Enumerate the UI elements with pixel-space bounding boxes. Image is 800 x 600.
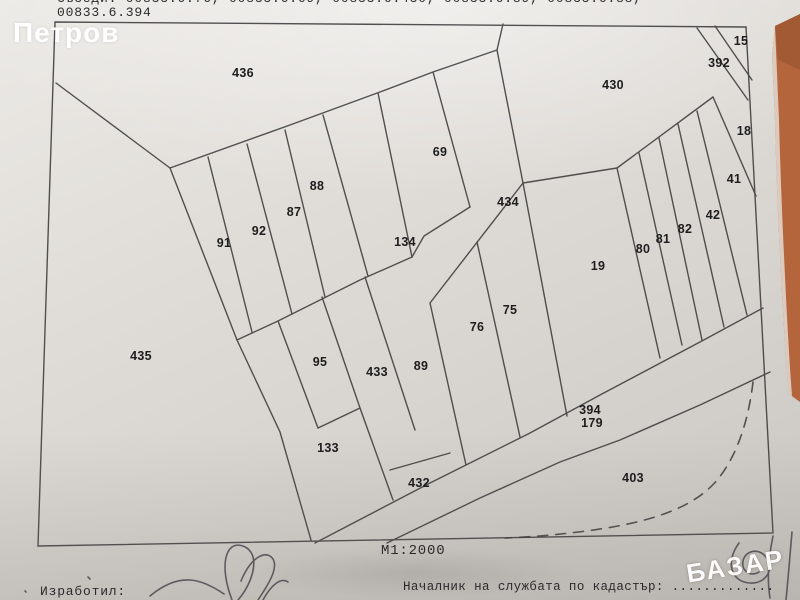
parcel-label-133: 133 [317, 441, 339, 455]
seller-name-watermark: Петров [13, 17, 119, 49]
parcel-label-91: 91 [217, 236, 232, 250]
road-parcel-lines [315, 308, 770, 543]
parcel-label-430: 430 [602, 78, 624, 92]
parcel-label-75: 75 [503, 303, 518, 317]
parcel-label-81: 81 [656, 232, 671, 246]
parcel-label-432: 432 [408, 476, 430, 490]
parcel-label-434: 434 [497, 195, 519, 209]
scanned-cadastral-map-photo: Съседи: 00833.6.76, 00833.6.69, 00833.6.… [0, 0, 800, 600]
parcel-label-80: 80 [636, 242, 651, 256]
parcel-label-433: 433 [366, 365, 388, 379]
parcel-boundaries [38, 22, 773, 546]
parcel-label-403: 403 [622, 471, 644, 485]
parcel-label-15: 15 [734, 34, 749, 48]
parcel-label-95: 95 [313, 355, 328, 369]
parcel-label-92: 92 [252, 224, 267, 238]
desk-edge-background [772, 14, 800, 402]
parcel-label-179: 179 [581, 416, 603, 430]
parcel-label-19: 19 [591, 259, 606, 273]
parcel-label-87: 87 [287, 205, 302, 219]
parcel-label-42: 42 [706, 208, 721, 222]
map-frame [38, 22, 773, 546]
signature-left [150, 545, 288, 600]
parcel-label-18: 18 [737, 124, 752, 138]
parcel-label-394: 394 [579, 403, 601, 417]
map-scale-label: М1:2000 [381, 543, 445, 559]
parcel-label-435: 435 [130, 349, 152, 363]
parcel-label-436: 436 [232, 66, 254, 80]
parcel-label-88: 88 [310, 179, 325, 193]
parcel-label-82: 82 [678, 222, 693, 236]
prepared-by-label: Изработил: [40, 584, 126, 599]
parcel-label-69: 69 [433, 145, 448, 159]
parcel-label-392: 392 [708, 56, 730, 70]
parcel-label-76: 76 [470, 320, 485, 334]
dashed-boundary-403 [505, 382, 753, 538]
parcel-label-41: 41 [727, 172, 742, 186]
cadastral-map-drawing [0, 0, 800, 600]
parcel-label-134: 134 [394, 235, 416, 249]
parcel-label-89: 89 [414, 359, 429, 373]
